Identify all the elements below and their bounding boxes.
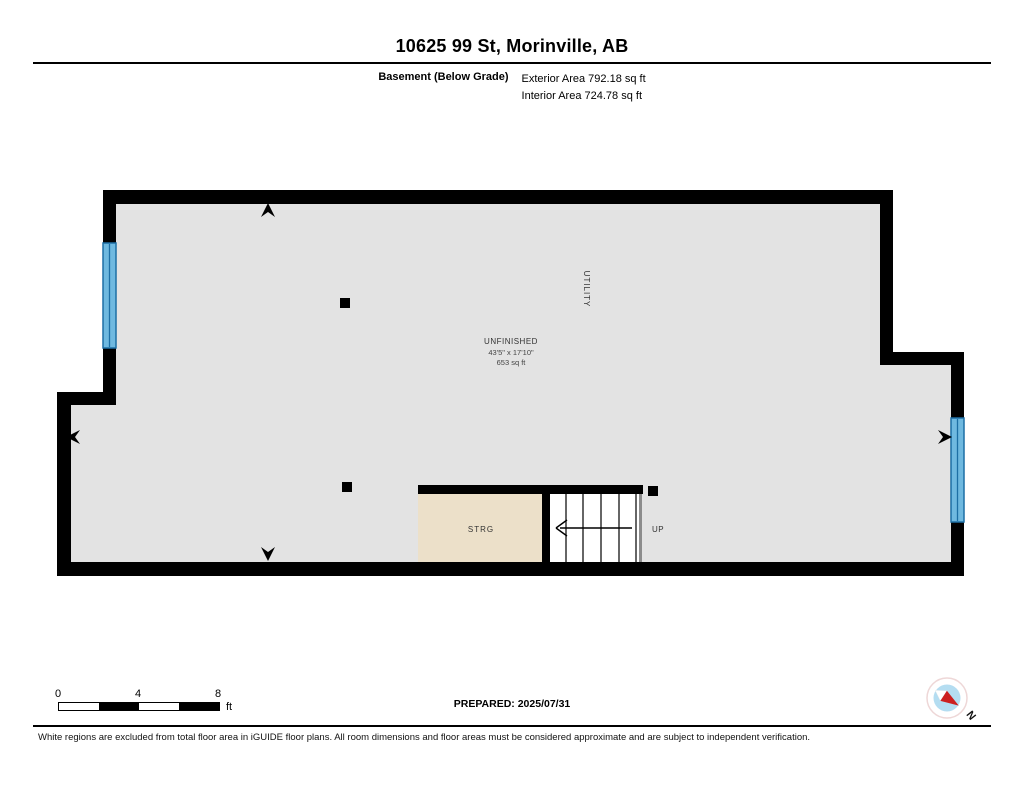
window-left — [103, 243, 116, 348]
unfinished-room-area: 653 sq ft — [497, 358, 527, 367]
window-right — [951, 418, 964, 522]
support-post — [342, 482, 352, 492]
storage-room-label: STRG — [468, 525, 494, 534]
floorplan-page: 10625 99 St, Morinville, AB Basement (Be… — [0, 0, 1024, 791]
disclaimer-text: White regions are excluded from total fl… — [38, 732, 998, 743]
support-post — [340, 298, 350, 308]
footer-divider — [33, 725, 991, 727]
floorplan-drawing: UTILITY UNFINISHED 43'5" x 17'10" 653 sq… — [0, 0, 1024, 660]
unfinished-room-dimensions: 43'5" x 17'10" — [488, 348, 534, 357]
storage-stairs-divider-wall — [542, 485, 550, 562]
compass-icon: N — [920, 672, 980, 728]
unfinished-room-label: UNFINISHED — [484, 337, 538, 346]
utility-room-label: UTILITY — [582, 271, 591, 308]
support-post — [648, 486, 658, 496]
stairs-up-label: UP — [652, 525, 664, 534]
storage-stairs-top-wall — [418, 485, 643, 494]
prepared-date: PREPARED: 2025/07/31 — [0, 698, 1024, 710]
compass-north-label: N — [963, 709, 977, 723]
staircase — [550, 494, 641, 562]
